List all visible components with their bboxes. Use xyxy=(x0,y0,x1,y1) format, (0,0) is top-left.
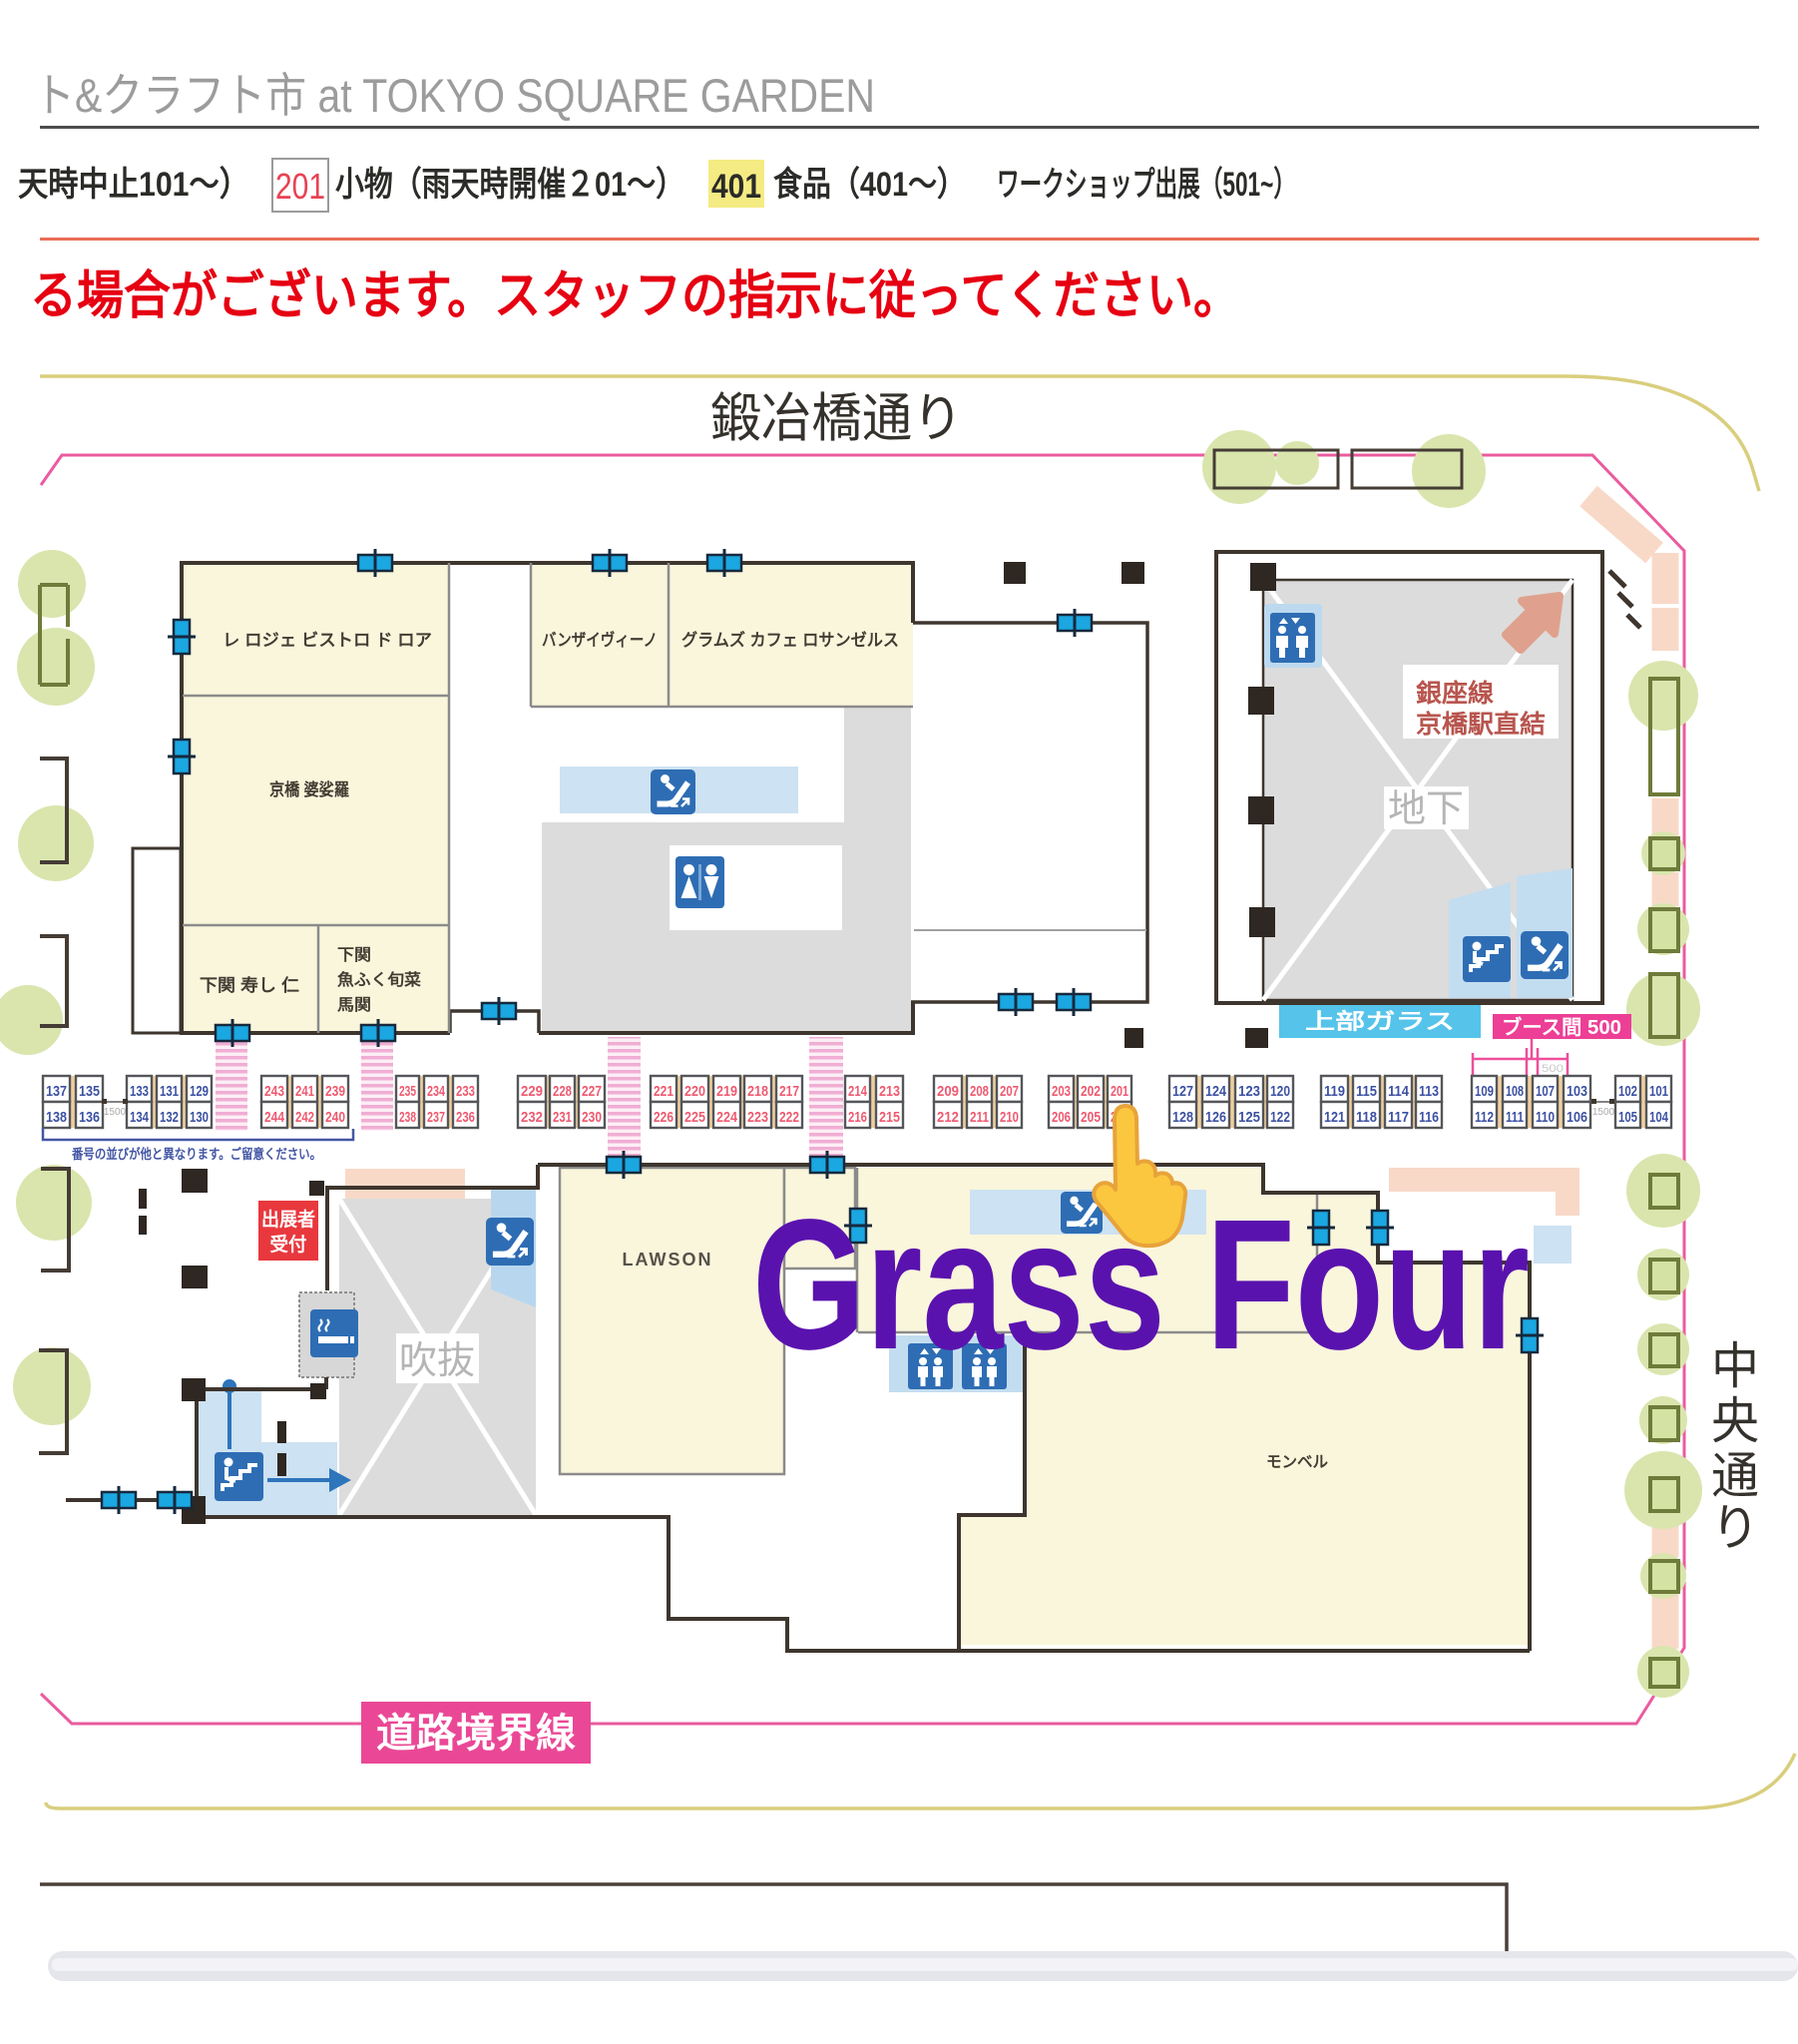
svg-text:207: 207 xyxy=(1000,1083,1019,1100)
svg-text:119: 119 xyxy=(1324,1083,1345,1100)
svg-text:127: 127 xyxy=(1172,1083,1193,1100)
svg-text:118: 118 xyxy=(1356,1109,1377,1126)
svg-text:バンザイヴィーノ: バンザイヴィーノ xyxy=(542,630,658,650)
svg-text:グラムズ カフェ ロサンゼルス: グラムズ カフェ ロサンゼルス xyxy=(681,630,899,650)
svg-text:230: 230 xyxy=(582,1109,602,1126)
svg-text:131: 131 xyxy=(160,1083,179,1100)
svg-text:天時中止101～）: 天時中止101～） xyxy=(18,165,249,204)
svg-text:魚ふく旬菜: 魚ふく旬菜 xyxy=(337,970,421,989)
svg-text:243: 243 xyxy=(264,1083,284,1100)
svg-text:201: 201 xyxy=(1111,1083,1128,1100)
svg-text:135: 135 xyxy=(79,1083,100,1100)
svg-text:216: 216 xyxy=(848,1109,867,1126)
svg-text:り: り xyxy=(1711,1500,1759,1556)
svg-text:232: 232 xyxy=(521,1109,543,1126)
svg-text:番号の並びが他と異なります。ご留意ください。: 番号の並びが他と異なります。ご留意ください。 xyxy=(71,1146,321,1162)
svg-text:111: 111 xyxy=(1506,1109,1524,1126)
svg-text:218: 218 xyxy=(747,1083,768,1100)
svg-text:道路境界線: 道路境界線 xyxy=(376,1712,576,1756)
svg-text:210: 210 xyxy=(1000,1109,1019,1126)
svg-text:500: 500 xyxy=(1542,1063,1564,1075)
svg-text:ト&クラフト市 at TOKYO SQUARE GARDEN: ト&クラフト市 at TOKYO SQUARE GARDEN xyxy=(34,69,875,122)
svg-text:238: 238 xyxy=(399,1109,416,1126)
svg-text:1500: 1500 xyxy=(1592,1107,1615,1118)
svg-text:120: 120 xyxy=(1270,1083,1290,1100)
svg-text:233: 233 xyxy=(456,1083,475,1100)
svg-text:223: 223 xyxy=(747,1109,768,1126)
svg-text:222: 222 xyxy=(779,1109,799,1126)
svg-text:通: 通 xyxy=(1711,1448,1759,1504)
svg-text:101: 101 xyxy=(1649,1083,1668,1100)
svg-text:242: 242 xyxy=(295,1109,314,1126)
svg-text:217: 217 xyxy=(779,1083,799,1100)
svg-text:103: 103 xyxy=(1567,1083,1587,1100)
svg-text:206: 206 xyxy=(1052,1109,1071,1126)
svg-text:モンベル: モンベル xyxy=(1266,1454,1328,1471)
svg-text:221: 221 xyxy=(654,1083,674,1100)
svg-text:133: 133 xyxy=(130,1083,149,1100)
svg-text:225: 225 xyxy=(684,1109,705,1126)
svg-text:123: 123 xyxy=(1238,1083,1260,1100)
svg-text:202: 202 xyxy=(1081,1083,1101,1100)
svg-text:食品（401～）: 食品（401～） xyxy=(773,165,966,204)
svg-text:吹抜: 吹抜 xyxy=(399,1340,475,1382)
svg-text:237: 237 xyxy=(427,1109,445,1126)
svg-text:239: 239 xyxy=(325,1083,345,1100)
svg-text:1500: 1500 xyxy=(104,1107,127,1118)
svg-text:227: 227 xyxy=(582,1083,602,1100)
svg-text:128: 128 xyxy=(1172,1109,1193,1126)
svg-text:211: 211 xyxy=(970,1109,989,1126)
svg-text:236: 236 xyxy=(456,1109,475,1126)
svg-text:121: 121 xyxy=(1324,1109,1345,1126)
svg-text:208: 208 xyxy=(970,1083,989,1100)
svg-text:鍛冶橋通り: 鍛冶橋通り xyxy=(710,389,963,448)
svg-text:る場合がございます。スタッフの指示に従ってください。: る場合がございます。スタッフの指示に従ってください。 xyxy=(30,266,1240,325)
svg-text:116: 116 xyxy=(1419,1109,1439,1126)
svg-text:235: 235 xyxy=(399,1083,416,1100)
svg-text:134: 134 xyxy=(130,1109,149,1126)
svg-text:114: 114 xyxy=(1388,1083,1410,1100)
svg-text:104: 104 xyxy=(1649,1109,1668,1126)
svg-text:226: 226 xyxy=(654,1109,674,1126)
svg-text:205: 205 xyxy=(1081,1109,1101,1126)
svg-text:銀座線: 銀座線 xyxy=(1416,679,1494,708)
svg-text:137: 137 xyxy=(46,1083,67,1100)
svg-text:央: 央 xyxy=(1711,1393,1759,1449)
svg-text:出展者: 出展者 xyxy=(261,1208,315,1231)
svg-text:102: 102 xyxy=(1618,1083,1637,1100)
svg-text:129: 129 xyxy=(190,1083,209,1100)
svg-text:229: 229 xyxy=(521,1083,543,1100)
svg-text:地下: 地下 xyxy=(1388,788,1464,830)
svg-text:136: 136 xyxy=(79,1109,100,1126)
svg-text:214: 214 xyxy=(848,1083,867,1100)
svg-text:203: 203 xyxy=(1052,1083,1071,1100)
svg-text:231: 231 xyxy=(553,1109,572,1126)
svg-text:244: 244 xyxy=(264,1109,285,1126)
svg-text:220: 220 xyxy=(684,1083,705,1100)
svg-text:110: 110 xyxy=(1536,1109,1555,1126)
svg-text:京橋駅直結: 京橋駅直結 xyxy=(1416,710,1546,739)
svg-text:小物（雨天時開催２01～）: 小物（雨天時開催２01～） xyxy=(335,165,684,204)
svg-text:112: 112 xyxy=(1475,1109,1494,1126)
svg-text:125: 125 xyxy=(1238,1109,1260,1126)
svg-text:109: 109 xyxy=(1475,1083,1494,1100)
svg-text:上部ガラス: 上部ガラス xyxy=(1305,1009,1455,1034)
svg-text:108: 108 xyxy=(1506,1083,1524,1100)
svg-text:中: 中 xyxy=(1711,1338,1759,1394)
svg-text:228: 228 xyxy=(553,1083,572,1100)
svg-text:212: 212 xyxy=(937,1109,959,1126)
svg-text:馬関: 馬関 xyxy=(337,996,371,1014)
svg-text:219: 219 xyxy=(716,1083,737,1100)
svg-text:105: 105 xyxy=(1618,1109,1637,1126)
svg-text:215: 215 xyxy=(879,1109,900,1126)
svg-text:132: 132 xyxy=(160,1109,179,1126)
svg-text:113: 113 xyxy=(1419,1083,1439,1100)
svg-text:レ ロジェ ビストロ ド ロア: レ ロジェ ビストロ ド ロア xyxy=(223,631,432,650)
svg-text:京橋 婆娑羅: 京橋 婆娑羅 xyxy=(269,779,349,799)
svg-text:241: 241 xyxy=(295,1083,314,1100)
svg-text:受付: 受付 xyxy=(270,1233,307,1256)
svg-text:下関 寿し 仁: 下関 寿し 仁 xyxy=(200,975,299,995)
svg-text:234: 234 xyxy=(427,1083,445,1100)
svg-text:LAWSON: LAWSON xyxy=(623,1250,713,1270)
svg-text:117: 117 xyxy=(1388,1109,1409,1126)
svg-text:ブース間 500: ブース間 500 xyxy=(1502,1015,1621,1039)
svg-text:201: 201 xyxy=(275,166,325,207)
svg-text:下関: 下関 xyxy=(337,946,371,964)
svg-text:224: 224 xyxy=(716,1109,738,1126)
svg-text:209: 209 xyxy=(937,1083,959,1100)
svg-text:124: 124 xyxy=(1205,1083,1227,1100)
svg-text:401: 401 xyxy=(711,168,761,206)
svg-text:107: 107 xyxy=(1536,1083,1555,1100)
svg-text:130: 130 xyxy=(190,1109,209,1126)
svg-text:115: 115 xyxy=(1356,1083,1377,1100)
svg-text:ワークショップ出展（501~）: ワークショップ出展（501~） xyxy=(997,165,1296,204)
svg-text:106: 106 xyxy=(1567,1109,1587,1126)
svg-text:126: 126 xyxy=(1205,1109,1226,1126)
svg-text:138: 138 xyxy=(46,1109,67,1126)
svg-text:240: 240 xyxy=(325,1109,345,1126)
svg-text:122: 122 xyxy=(1270,1109,1290,1126)
svg-text:213: 213 xyxy=(879,1083,900,1100)
